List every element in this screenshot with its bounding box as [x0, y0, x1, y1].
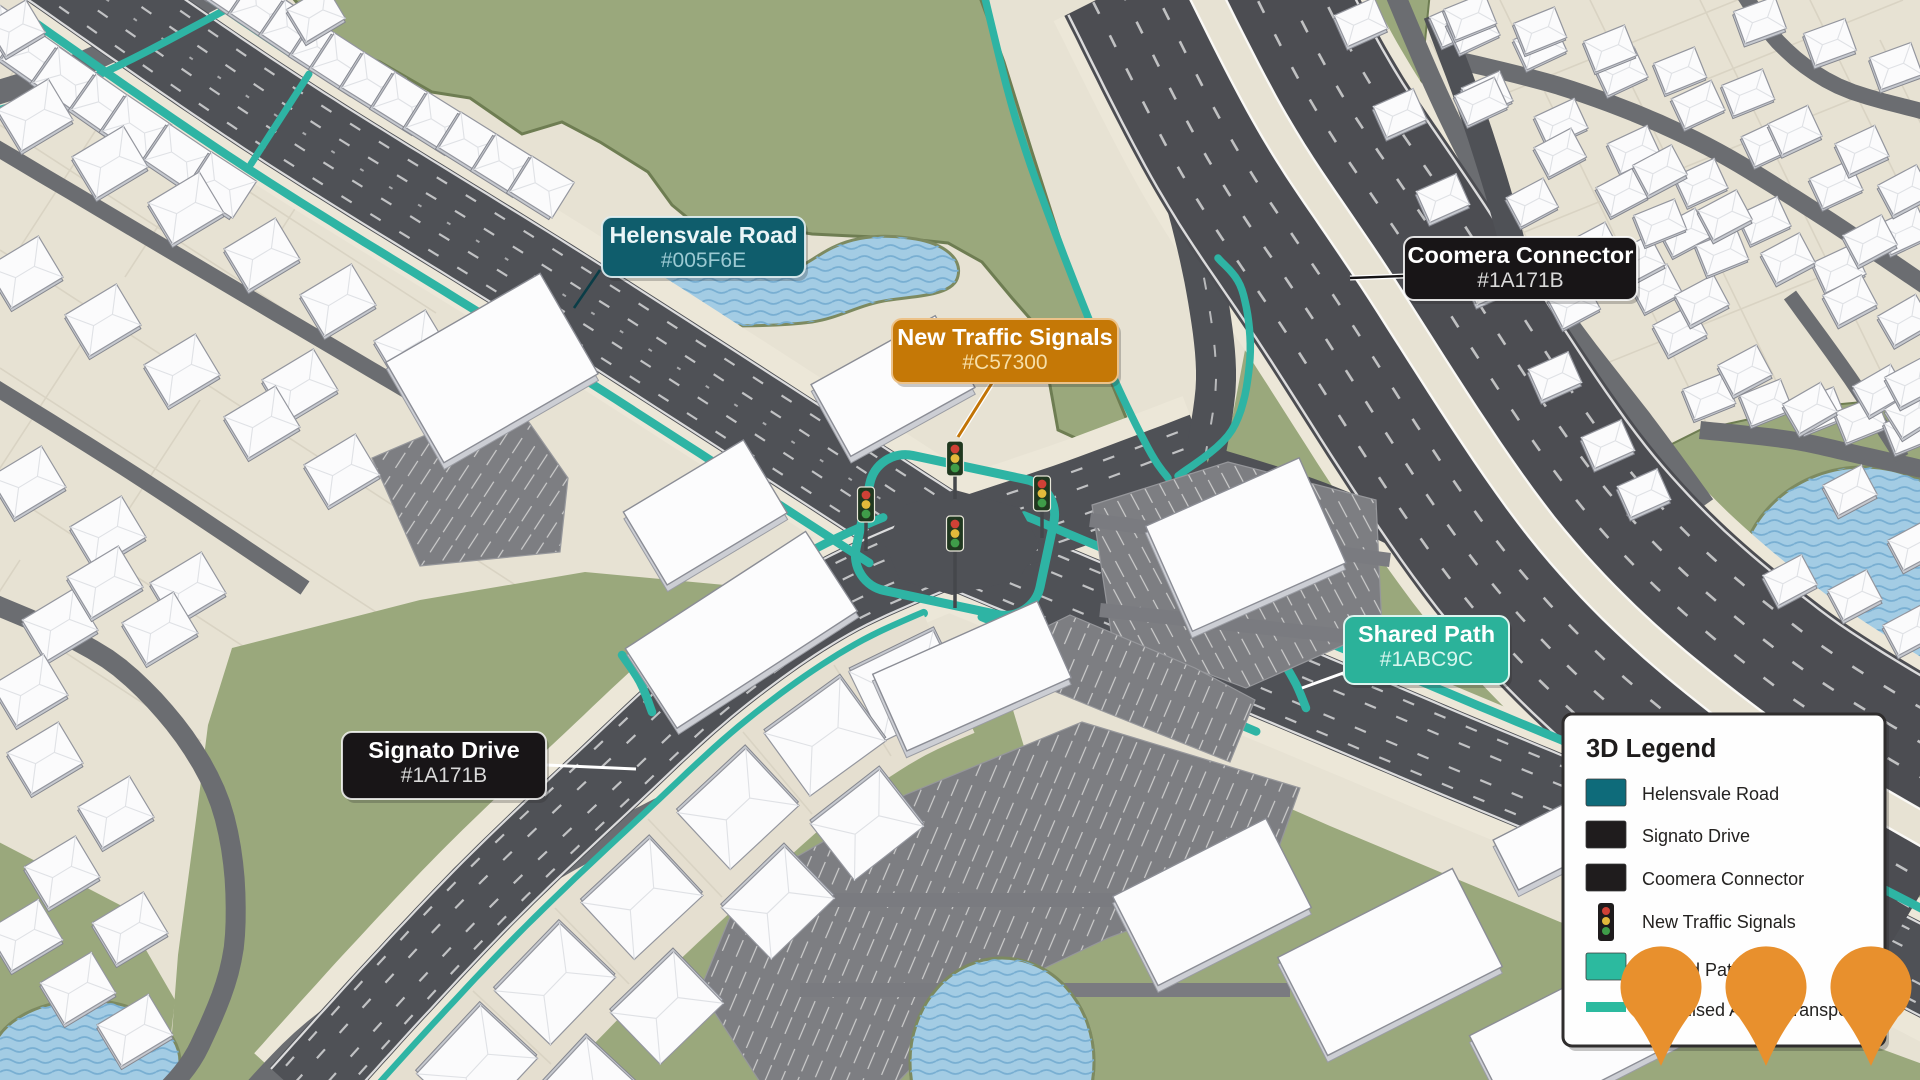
svg-text:#1ABC9C: #1ABC9C: [1380, 648, 1473, 671]
svg-text:#1A171B: #1A171B: [401, 764, 487, 787]
svg-text:New Traffic Signals: New Traffic Signals: [897, 324, 1112, 350]
svg-text:Coomera Connector: Coomera Connector: [1642, 869, 1804, 889]
svg-text:Shared Path: Shared Path: [1358, 621, 1495, 647]
svg-text:#C57300: #C57300: [962, 351, 1047, 374]
svg-text:#005F6E: #005F6E: [661, 249, 746, 272]
svg-text:Helensvale Road: Helensvale Road: [609, 222, 797, 248]
svg-text:Signato Drive: Signato Drive: [1642, 826, 1750, 846]
svg-text:3D Legend: 3D Legend: [1586, 735, 1716, 763]
svg-text:#1A171B: #1A171B: [1477, 269, 1563, 292]
svg-text:Signato Drive: Signato Drive: [368, 737, 519, 763]
svg-text:Coomera Connector: Coomera Connector: [1408, 242, 1634, 268]
svg-text:New Traffic Signals: New Traffic Signals: [1642, 912, 1796, 932]
svg-text:Helensvale Road: Helensvale Road: [1642, 784, 1779, 804]
